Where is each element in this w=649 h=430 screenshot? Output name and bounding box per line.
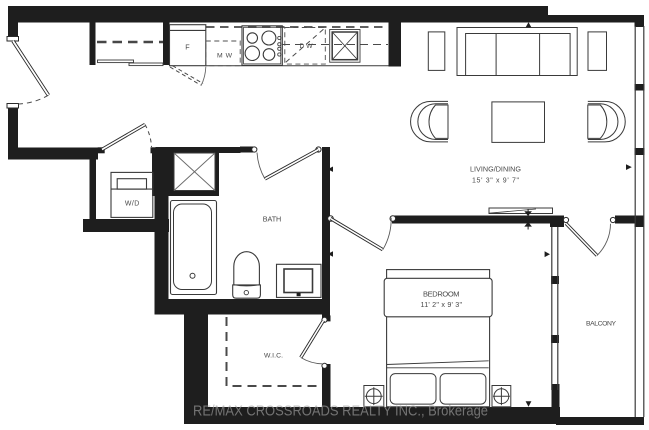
svg-text:BALCONY: BALCONY bbox=[586, 320, 616, 327]
svg-text:DW: DW bbox=[300, 43, 314, 50]
svg-text:RE/MAX CROSSROADS REALTY INC.,: RE/MAX CROSSROADS REALTY INC., Brokerage bbox=[193, 403, 488, 420]
svg-text:15' 3" x 9' 7": 15' 3" x 9' 7" bbox=[472, 178, 520, 185]
svg-text:BATH: BATH bbox=[263, 215, 282, 224]
svg-text:BEDROOM: BEDROOM bbox=[423, 290, 460, 299]
svg-text:MW: MW bbox=[217, 53, 233, 60]
svg-text:W/D: W/D bbox=[125, 201, 140, 208]
svg-text:F: F bbox=[185, 43, 190, 52]
svg-text:W.I.C.: W.I.C. bbox=[264, 353, 283, 360]
svg-text:11' 2" x 9' 3": 11' 2" x 9' 3" bbox=[421, 300, 463, 309]
svg-text:LIVING/DINING: LIVING/DINING bbox=[470, 165, 521, 174]
